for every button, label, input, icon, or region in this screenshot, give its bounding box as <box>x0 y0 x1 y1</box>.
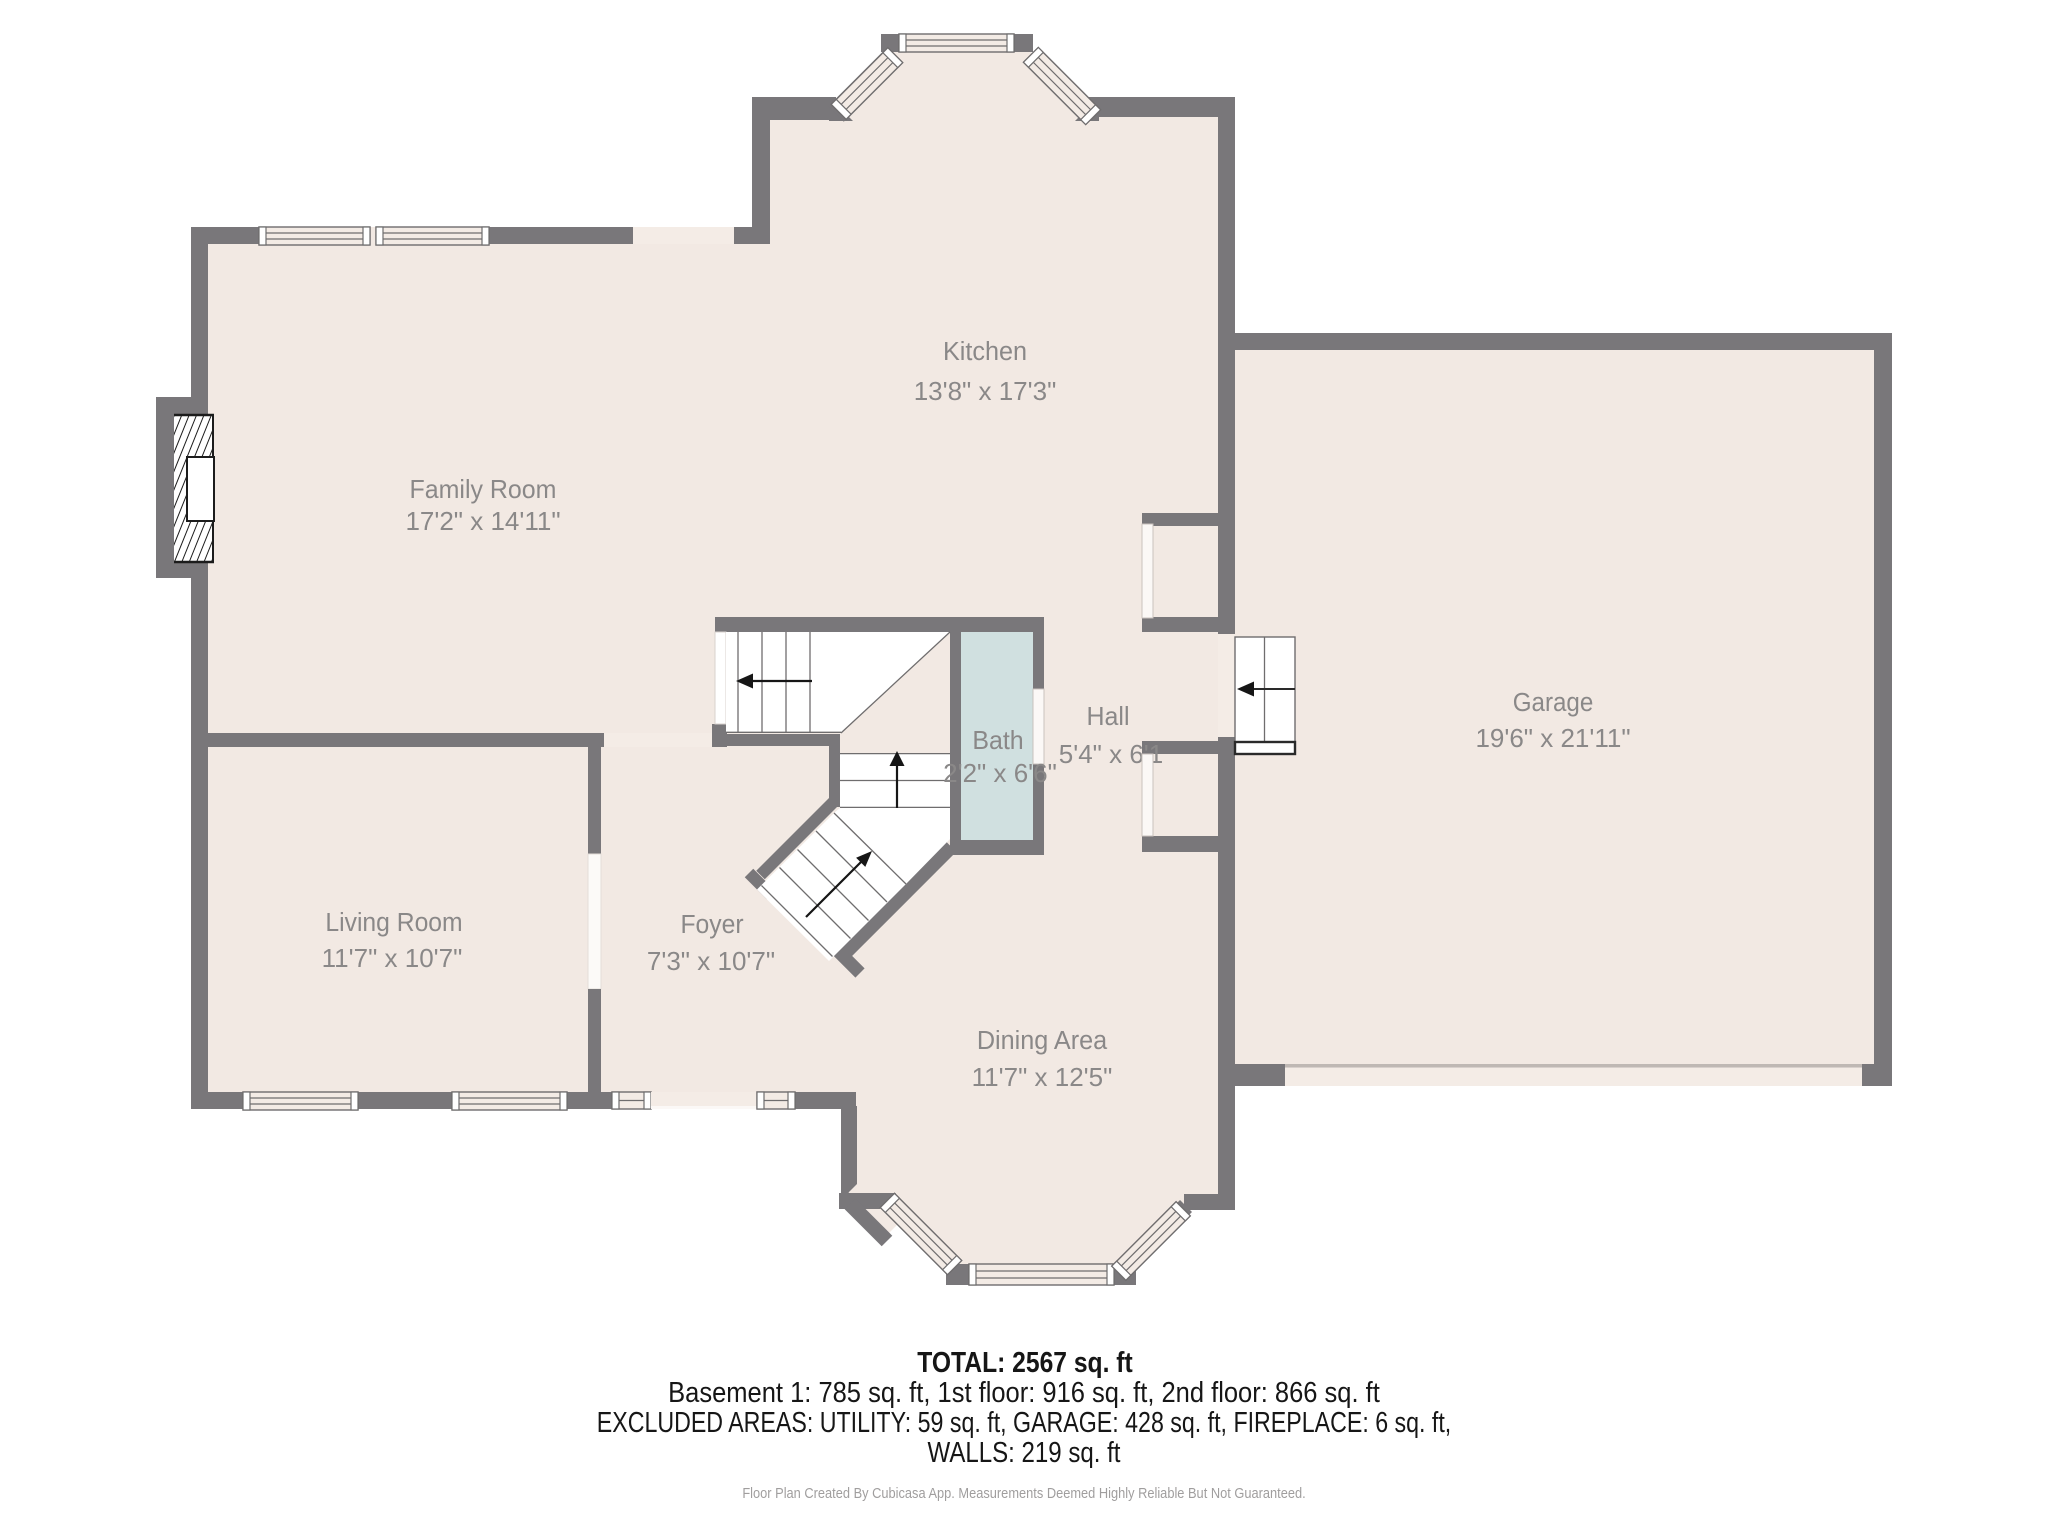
svg-text:11'7" x 12'5": 11'7" x 12'5" <box>972 1062 1113 1092</box>
svg-text:Kitchen: Kitchen <box>943 338 1027 366</box>
svg-text:17'2" x 14'11": 17'2" x 14'11" <box>405 506 560 536</box>
svg-text:Dining Area: Dining Area <box>977 1027 1108 1055</box>
svg-text:WALLS: 219 sq. ft: WALLS: 219 sq. ft <box>928 1436 1121 1469</box>
svg-text:TOTAL: 2567 sq. ft: TOTAL: 2567 sq. ft <box>917 1346 1132 1378</box>
svg-text:Living Room: Living Room <box>325 908 462 937</box>
svg-text:Floor Plan Created By Cubicasa: Floor Plan Created By Cubicasa App. Meas… <box>742 1485 1305 1501</box>
svg-text:EXCLUDED AREAS: UTILITY: 59 sq: EXCLUDED AREAS: UTILITY: 59 sq. ft, GARA… <box>597 1405 1452 1438</box>
svg-text:Basement 1: 785 sq. ft, 1st fl: Basement 1: 785 sq. ft, 1st floor: 916 s… <box>668 1375 1380 1408</box>
svg-text:11'7" x 10'7": 11'7" x 10'7" <box>322 943 463 973</box>
svg-text:Garage: Garage <box>1513 688 1594 717</box>
svg-text:Family Room: Family Room <box>410 476 557 505</box>
svg-text:2'2" x 6'6": 2'2" x 6'6" <box>943 758 1057 788</box>
svg-text:7'3" x 10'7": 7'3" x 10'7" <box>647 946 775 976</box>
svg-text:Foyer: Foyer <box>680 910 744 939</box>
svg-text:Bath: Bath <box>972 727 1023 756</box>
svg-text:19'6" x 21'11": 19'6" x 21'11" <box>1475 723 1630 753</box>
svg-text:13'8" x 17'3": 13'8" x 17'3" <box>914 376 1057 406</box>
svg-text:Hall: Hall <box>1087 703 1130 732</box>
